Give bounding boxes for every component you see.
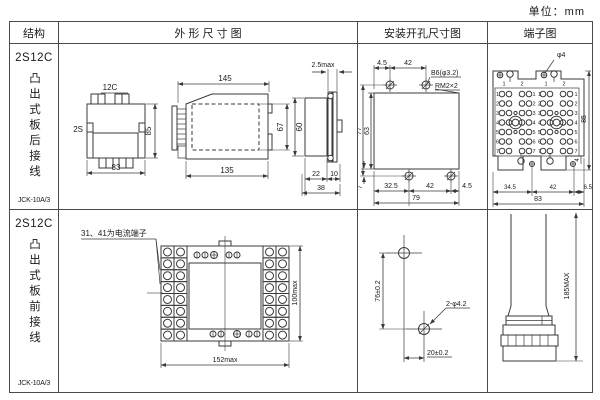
strip-terminal-circle [266,307,274,315]
terminal-row-number: 7 [532,149,535,155]
dim-85: 85 [144,126,153,135]
dim-60: 60 [295,122,304,131]
strip-terminal-circle [266,248,274,256]
side-view: 145 135 67 [172,74,290,179]
terminal-circle [499,120,505,126]
terminal-drawing-rear-wiring: φ4 1212 1111222233334444555566667777 85 … [488,44,592,209]
terminal-circle [540,110,546,116]
outline-cell-row1: 12C 2S 85 83 [59,44,358,210]
dim-phi4: φ4 [557,52,566,59]
terminal-circle [560,110,566,116]
strip-terminal-circle [279,295,287,303]
strip-terminal-circle [164,272,172,280]
strip-terminal-circle [164,284,172,292]
terminal-circle [547,148,553,154]
terminal-row-number: 6 [532,140,535,146]
profile-view: 2.5max 60 22 10 38 [292,62,352,196]
terminal-row-number: 1 [532,92,535,98]
terminal-circle [526,110,532,116]
small-hole [514,130,517,133]
terminal-row-number: 3 [538,111,541,117]
strip-terminal-circle [177,260,185,268]
strip-terminal-circle [266,272,274,280]
mount-type-row2: 凸出式板前接线 [26,238,42,380]
terminal-drawing-front-wiring: 185MAX [488,210,592,392]
strip-terminal-circle [279,284,287,292]
terminal-circle [567,110,573,116]
terminal-cell-row1: φ4 1212 1111222233334444555566667777 85 … [488,44,592,210]
terminal-col-number: 1 [502,82,505,88]
terminal-circle [506,110,512,116]
structure-cell-row2: 2S12C 凸出式板前接线 JCK-10A/3 [10,210,59,392]
dim-42-bottom: 42 [426,183,434,190]
outline-drawing-front-wiring: 31、41为电流端子 1 [59,210,356,392]
dim-4-5-bottom: 4.5 [462,183,472,190]
terminal-circle [567,120,573,126]
dim-34-5: 34.5 [504,185,516,191]
label-2s: 2S [73,125,83,134]
terminal-circle [567,148,573,154]
dim-2-5max: 2.5max [312,62,335,69]
terminal-circle [567,101,573,107]
terminal-row-number: 4 [538,121,541,127]
terminal-circle [506,148,512,154]
dim-22: 22 [312,171,320,178]
terminal-col-number: 2 [520,82,523,88]
strip-terminal-circle [177,307,185,315]
strip-terminal-circle [164,307,172,315]
terminal-row-number: 6 [574,140,577,146]
terminal-row-number: 5 [532,130,535,136]
terminal-circle [519,129,525,135]
mounting-bush-inner [553,119,560,126]
mounting-bush-inner [512,119,519,126]
dim-4-5-top: 4.5 [377,60,387,67]
mounting-bush-outer [509,116,522,129]
terminal-circle [526,148,532,154]
terminal-col-number: 2 [562,82,565,88]
front-view: 31、41为电流端子 1 [81,228,303,368]
terminal-row-number: 1 [496,92,499,98]
dim-32-5: 32.5 [384,183,398,190]
dim-77: 77 [358,127,363,135]
terminal-cell-row2: 185MAX [488,210,592,392]
terminal-circle [547,110,553,116]
strip-terminal-circle [177,295,185,303]
dim-185max: 185MAX [564,272,571,299]
terminal-circle [519,110,525,116]
terminal-circle [540,139,546,145]
strip-terminal-circle [164,319,172,327]
terminal-circle [519,148,525,154]
dim-83-terminal: 83 [534,196,542,203]
terminal-circle [560,139,566,145]
strip-terminal-circle [279,260,287,268]
terminal-circle [499,101,505,107]
header-terminal: 端子图 [488,22,592,44]
terminal-circle [540,120,546,126]
dim-4-terminal: 4 [575,158,581,162]
terminal-row-number: 6 [496,140,499,146]
hole-spec-label-2: 2-φ4.2 [446,301,467,308]
terminal-row-number: 4 [532,121,535,127]
dim-38: 38 [317,185,325,192]
dim-63: 63 [364,127,371,135]
mounting-hole-layout-2: 76±0.2 2-φ4.2 20±0.2 [375,235,470,362]
label-12c: 12C [103,83,118,92]
terminal-circle [567,139,573,145]
terminal-circle [540,129,546,135]
unit-note: 单位：mm [529,3,585,19]
dim-145: 145 [218,74,232,83]
terminal-circle [499,129,505,135]
terminal-circle [506,101,512,107]
outline-drawing-rear-wiring: 12C 2S 85 83 [59,44,356,209]
terminal-circle [506,91,512,97]
terminal-row-number: 6 [538,140,541,146]
terminal-row-number: 1 [574,92,577,98]
strip-terminal-circle [266,319,274,327]
terminal-circle [560,129,566,135]
terminal-circle [499,91,505,97]
strip-terminal-circle [279,307,287,315]
header-mounting: 安装开孔尺寸图 [358,22,488,44]
terminal-row-number: 3 [532,111,535,117]
terminal-circle [547,101,553,107]
terminal-circle [499,139,505,145]
model-code-row2: JCK-10A/3 [18,380,50,387]
terminal-row-number: 2 [538,102,541,108]
terminal-row-number: 5 [538,130,541,136]
terminal-circle [560,148,566,154]
terminal-row-number: 7 [496,149,499,155]
mounting-cell-row2: 76±0.2 2-φ4.2 20±0.2 [358,210,488,392]
dim-42-top: 42 [404,60,412,67]
terminal-circle [540,91,546,97]
terminal-circle [506,139,512,145]
terminal-circle [547,91,553,97]
structure-cell-row1: 2S12C 凸出式板后接线 JCK-10A/3 [10,44,59,210]
terminal-circle [519,91,525,97]
dim-6-5: 6.5 [584,185,592,191]
terminal-circle [506,129,512,135]
strip-terminal-circle [279,319,287,327]
strip-terminal-circle [177,331,185,339]
dim-79: 79 [412,195,420,202]
dim-7: 7 [358,185,364,189]
dim-85-terminal: 85 [581,115,588,123]
terminal-row-number: 5 [496,130,499,136]
small-hole [555,130,558,133]
current-terminal-note: 31、41为电流端子 [81,228,147,238]
strip-terminal-circle [164,331,172,339]
terminal-circle [547,139,553,145]
strip-terminal-circle [164,260,172,268]
strip-terminal-circle [164,248,172,256]
header-outline: 外 形 尺 寸 图 [59,22,358,44]
strip-terminal-circle [266,331,274,339]
hole-spec-label: B6(φ3.2) [431,70,459,77]
terminal-circle [547,129,553,135]
mount-type-row1: 凸出式板后接线 [26,72,42,197]
strip-terminal-circle [279,248,287,256]
terminal-row-number: 3 [574,111,577,117]
terminal-row-number: 2 [532,102,535,108]
terminal-column-numbers: 1212 [502,82,565,88]
mounting-cell-row1: 4.5 42 B6(φ3.2) RM2×2 77 63 7 32.5 [358,44,488,210]
strip-terminal-circle [177,248,185,256]
terminal-col-number: 1 [544,82,547,88]
terminal-circle [499,110,505,116]
terminal-grid: 1111222233334444555566667777 [496,91,578,155]
terminal-circle [526,139,532,145]
terminal-circle [526,91,532,97]
terminal-circle [526,129,532,135]
dim-42-terminal: 42 [550,185,557,191]
strip-terminal-circle [279,331,287,339]
terminal-circle [567,91,573,97]
dim-20: 20±0.2 [427,350,448,357]
terminal-plate: φ4 1212 1111222233334444555566667777 85 … [493,52,592,207]
strip-terminal-circle [177,284,185,292]
model-label-row2: 2S12C [15,218,53,230]
strip-terminal-circle [279,272,287,280]
terminal-row-number: 2 [496,102,499,108]
strip-terminal-circle [164,295,172,303]
outline-cell-row2: 31、41为电流端子 1 [59,210,358,392]
relay-side-profile: 185MAX [501,213,583,361]
strip-terminal-circle [266,260,274,268]
terminal-circle [560,101,566,107]
dim-100max: 100max [292,280,299,305]
terminal-circle [499,148,505,154]
strip-terminal-circle [266,295,274,303]
small-hole [514,111,517,114]
terminal-row-number: 2 [574,102,577,108]
terminal-row-number: 7 [538,149,541,155]
terminal-row-number: 4 [574,121,577,127]
dim-135: 135 [220,166,234,175]
terminal-row-number: 3 [496,111,499,117]
mounting-bush-outer [550,116,563,129]
model-code-row1: JCK-10A/3 [18,197,50,204]
dim-152max: 152max [213,357,238,364]
strip-terminal-circle [266,284,274,292]
terminal-circle [540,101,546,107]
dim-76: 76±0.2 [375,280,382,301]
terminal-row-number: 1 [538,92,541,98]
rear-view: 12C 2S 85 83 [73,83,158,176]
terminal-row-number: 7 [574,149,577,155]
terminal-circle [526,101,532,107]
dim-10: 10 [330,171,338,178]
header-structure: 结构 [10,22,59,44]
model-label-row1: 2S12C [15,52,53,64]
small-hole [555,111,558,114]
terminal-circle [519,101,525,107]
strip-terminal-circle [177,272,185,280]
terminal-circle [560,91,566,97]
terminal-row-number: 5 [574,130,577,136]
strip-terminal-circle [177,319,185,327]
terminal-circle [540,148,546,154]
spec-table: 结构 外 形 尺 寸 图 安装开孔尺寸图 端子图 2S12C 凸出式板后接线 J… [9,21,593,393]
screw-spec-label: RM2×2 [435,83,458,90]
mounting-drawing-front-wiring: 76±0.2 2-φ4.2 20±0.2 [358,210,486,392]
terminal-circle [567,129,573,135]
mounting-hole-layout: 4.5 42 B6(φ3.2) RM2×2 77 63 7 32.5 [358,60,472,206]
terminal-circle [519,139,525,145]
mounting-drawing-rear-wiring: 4.5 42 B6(φ3.2) RM2×2 77 63 7 32.5 [358,44,486,209]
terminal-circle [526,120,532,126]
dim-67: 67 [276,122,285,131]
terminal-row-number: 4 [496,121,499,127]
dim-83: 83 [112,163,121,172]
